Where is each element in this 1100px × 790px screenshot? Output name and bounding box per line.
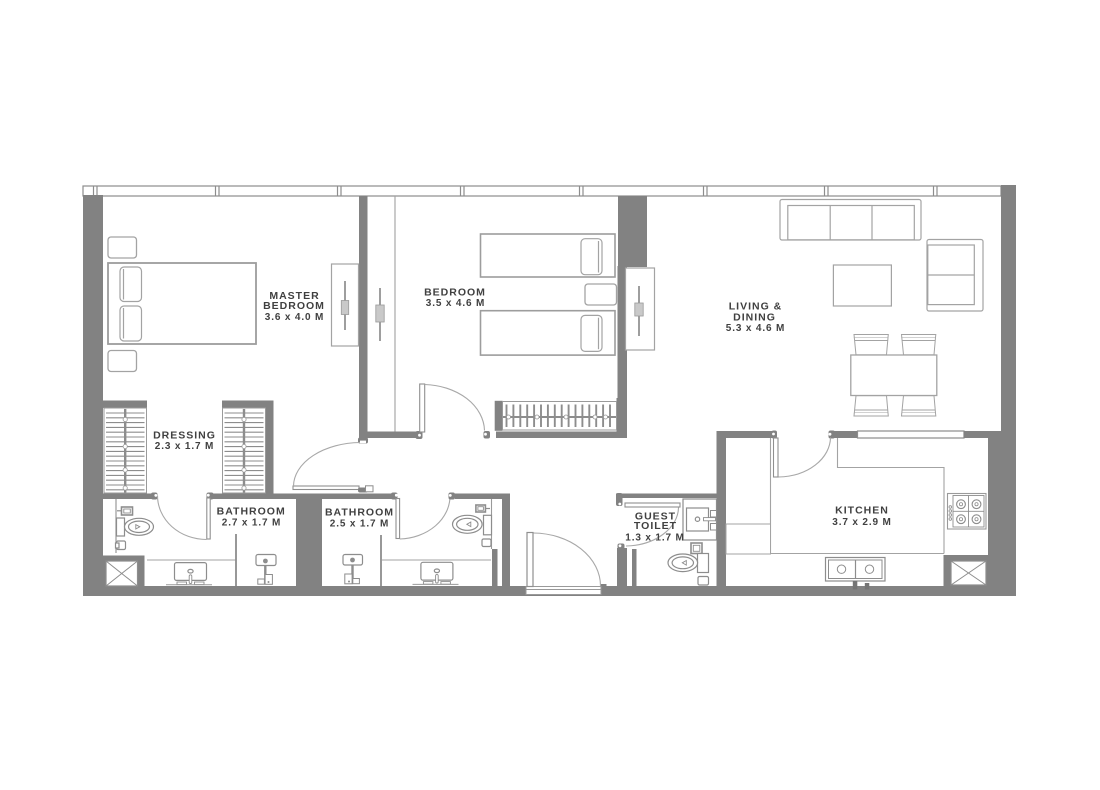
svg-text:BEDROOM: BEDROOM: [424, 287, 486, 299]
svg-text:BATHROOM: BATHROOM: [217, 506, 286, 518]
svg-text:1.3 x 1.7 M: 1.3 x 1.7 M: [625, 533, 684, 544]
svg-text:3.6 x 4.0 M: 3.6 x 4.0 M: [265, 312, 324, 323]
svg-text:2.3 x 1.7 M: 2.3 x 1.7 M: [155, 441, 214, 452]
svg-text:2.5 x 1.7 M: 2.5 x 1.7 M: [330, 518, 389, 529]
svg-text:DINING: DINING: [733, 311, 776, 323]
svg-text:DRESSING: DRESSING: [153, 430, 216, 442]
svg-text:TOILET: TOILET: [634, 520, 677, 532]
svg-text:2.7 x 1.7 M: 2.7 x 1.7 M: [222, 518, 281, 529]
svg-text:3.5 x 4.6 M: 3.5 x 4.6 M: [426, 298, 485, 309]
svg-text:BEDROOM: BEDROOM: [263, 300, 325, 312]
svg-text:BATHROOM: BATHROOM: [325, 506, 394, 518]
svg-text:KITCHEN: KITCHEN: [835, 504, 889, 516]
svg-text:3.7 x 2.9 M: 3.7 x 2.9 M: [832, 517, 891, 528]
svg-text:5.3 x 4.6 M: 5.3 x 4.6 M: [726, 323, 785, 334]
